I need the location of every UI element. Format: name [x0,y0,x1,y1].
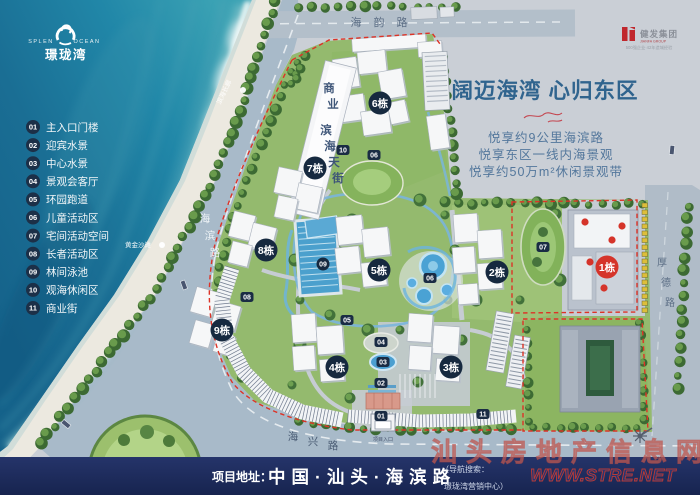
svg-text:11: 11 [479,412,487,419]
svg-text:02: 02 [29,141,37,150]
svg-text:9栋: 9栋 [214,324,231,337]
svg-text:中国·汕头·海滨路: 中国·汕头·海滨路 [268,467,456,487]
svg-text:海: 海 [288,430,299,443]
svg-text:林间泳池: 林间泳池 [46,266,88,279]
svg-text:韵: 韵 [374,15,385,29]
svg-text:商业街: 商业街 [46,302,78,315]
svg-text:汕头房地产信息网: 汕头房地产信息网 [431,437,700,467]
svg-text:SPLEN: SPLEN [28,39,54,45]
svg-text:路: 路 [397,16,408,29]
svg-text:璟珑湾营销中心）: 璟珑湾营销中心） [444,481,508,491]
svg-text:观海休闲区: 观海休闲区 [46,284,99,297]
svg-text:兴: 兴 [308,436,319,448]
svg-text:07: 07 [29,231,37,240]
svg-text:01: 01 [29,123,37,132]
svg-text:11: 11 [29,304,37,313]
svg-text:海: 海 [351,15,362,29]
svg-text:璟珑湾: 璟珑湾 [45,47,87,62]
svg-text:08: 08 [29,249,37,258]
svg-text:06: 06 [426,276,434,283]
svg-text:02: 02 [377,381,385,388]
svg-text:儿童活动区: 儿童活动区 [46,211,99,224]
svg-text:JIANFA GROUP: JIANFA GROUP [640,40,667,44]
svg-text:2栋: 2栋 [489,266,506,279]
svg-text:09: 09 [29,268,37,277]
svg-text:悦享约9公里海滨路: 悦享约9公里海滨路 [488,130,604,145]
svg-text:项目入口: 项目入口 [373,437,393,443]
svg-text:06: 06 [370,153,378,160]
svg-text:主入口门楼: 主入口门楼 [46,121,99,134]
svg-text:09: 09 [319,262,327,269]
svg-text:OCEAN: OCEAN [73,39,100,45]
svg-text:07: 07 [539,245,547,252]
svg-text:05: 05 [343,318,351,325]
svg-text:1栋: 1栋 [599,261,616,274]
svg-text:06: 06 [29,213,37,222]
svg-text:WWW.STRE.NET: WWW.STRE.NET [530,465,676,485]
svg-text:03: 03 [29,159,37,168]
svg-text:健发集团: 健发集团 [640,29,678,39]
svg-text:滨: 滨 [205,229,216,242]
svg-text:阔迈海湾 心归东区: 阔迈海湾 心归东区 [452,78,639,103]
svg-text:厚: 厚 [657,257,667,269]
svg-text:景观会客厅: 景观会客厅 [46,175,99,188]
svg-text:3栋: 3栋 [443,361,460,374]
svg-text:04: 04 [377,340,385,347]
svg-text:03: 03 [379,360,387,367]
svg-text:500强企业·42年造城经验: 500强企业·42年造城经验 [626,44,673,51]
svg-text:业: 业 [327,97,339,111]
svg-text:路: 路 [210,246,221,259]
svg-text:商: 商 [323,81,335,95]
svg-text:悦享约50万m²休闲景观带: 悦享约50万m²休闲景观带 [469,164,623,179]
svg-text:德: 德 [661,276,671,289]
svg-text:滨: 滨 [320,123,332,137]
svg-text:长者活动区: 长者活动区 [46,249,99,261]
svg-text:悦享东区一线内海景观: 悦享东区一线内海景观 [478,147,613,162]
svg-text:街: 街 [331,171,344,185]
svg-text:黄金沙滩: 黄金沙滩 [125,240,152,249]
svg-text:6栋: 6栋 [372,97,389,110]
svg-text:7栋: 7栋 [307,162,324,175]
svg-text:10: 10 [339,148,347,155]
svg-text:04: 04 [29,177,38,186]
svg-text:天: 天 [328,156,340,169]
svg-text:05: 05 [29,195,37,204]
svg-text:10: 10 [29,286,37,295]
svg-text:5栋: 5栋 [371,264,388,277]
svg-text:08: 08 [243,295,251,302]
svg-text:4栋: 4栋 [329,361,346,374]
svg-text:迎宾水景: 迎宾水景 [46,139,88,152]
svg-text:路: 路 [328,439,339,452]
svg-text:海: 海 [200,212,211,225]
svg-text:环园跑道: 环园跑道 [46,193,88,206]
svg-text:项目地址：: 项目地址： [212,469,272,484]
svg-text:8栋: 8栋 [258,244,275,257]
svg-text:路: 路 [665,296,675,309]
svg-text:中心水景: 中心水景 [46,157,88,170]
svg-text:01: 01 [377,414,385,421]
svg-text:宅间活动空间: 宅间活动空间 [46,229,109,242]
svg-text:海: 海 [324,139,336,153]
